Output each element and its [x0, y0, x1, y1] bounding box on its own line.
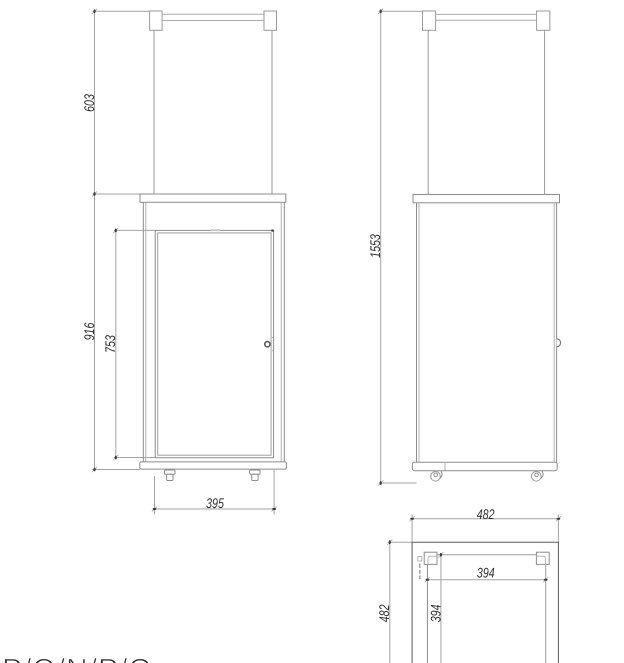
- svg-text:395: 395: [206, 495, 224, 511]
- svg-text:482: 482: [376, 604, 392, 622]
- svg-text:916: 916: [81, 322, 97, 340]
- svg-text:753: 753: [102, 335, 118, 353]
- svg-text:603: 603: [81, 94, 97, 112]
- svg-text:482: 482: [477, 506, 495, 522]
- svg-text:P/O/N/P/G: P/O/N/P/G: [2, 654, 153, 663]
- svg-text:1553: 1553: [367, 234, 383, 258]
- svg-text:394: 394: [427, 604, 443, 622]
- svg-text:394: 394: [477, 565, 495, 581]
